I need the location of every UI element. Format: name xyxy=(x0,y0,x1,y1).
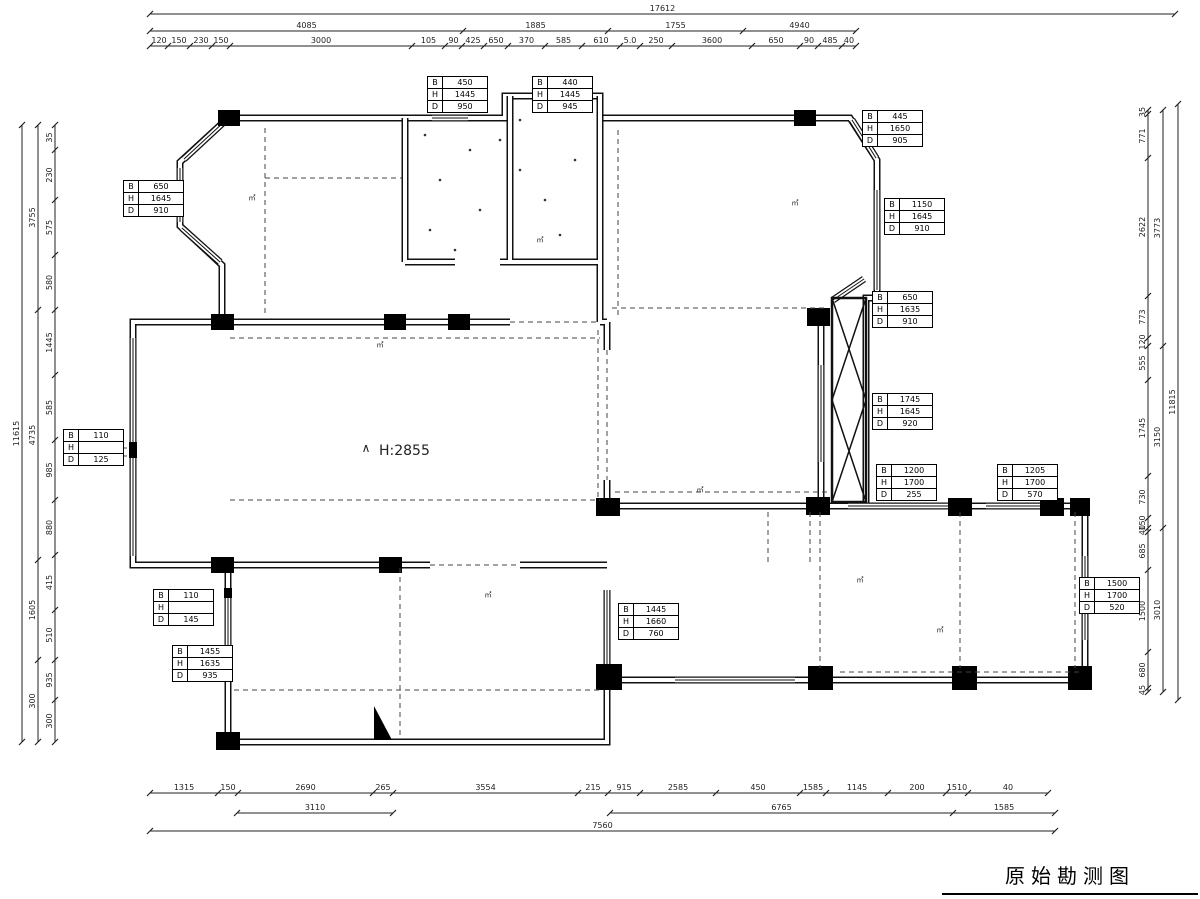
spec-key: D xyxy=(877,489,892,500)
column xyxy=(794,110,816,126)
spec-value: 1645 xyxy=(888,406,932,417)
dimension-label: 1445 xyxy=(45,332,54,352)
dimension-label: 1755 xyxy=(665,21,685,30)
spec-value: 1205 xyxy=(1013,465,1057,476)
dimension-label: 685 xyxy=(1138,543,1147,558)
tile-dots xyxy=(424,119,577,252)
spec-key: D xyxy=(998,489,1013,500)
window-symbol xyxy=(182,228,220,262)
tile-dot xyxy=(519,169,522,172)
window-symbol xyxy=(184,121,225,159)
spec-key: D xyxy=(619,628,634,639)
dimension-label: 370 xyxy=(519,36,534,45)
spec-key: H xyxy=(877,477,892,488)
spec-row: H1700 xyxy=(1080,590,1139,602)
dimension-label: 1510 xyxy=(947,783,967,792)
spec-key: H xyxy=(64,442,79,453)
spec-value: 650 xyxy=(888,292,932,303)
tile-dot xyxy=(499,139,502,142)
dimension-label: 510 xyxy=(45,627,54,642)
spec-row: D910 xyxy=(885,223,944,234)
spec-key: D xyxy=(533,101,548,112)
spec-row: B1745 xyxy=(873,394,932,406)
spec-row: B1200 xyxy=(877,465,936,477)
entry-door-leaf xyxy=(374,706,392,740)
spec-value: 1500 xyxy=(1095,578,1139,589)
spec-row: B445 xyxy=(863,111,922,123)
spec-value: 450 xyxy=(443,77,487,88)
dimension-label: 11815 xyxy=(1168,389,1177,414)
tile-dot xyxy=(469,149,472,152)
dimension-label: 6765 xyxy=(771,803,791,812)
spec-row: H1635 xyxy=(173,658,232,670)
dimension-label: 230 xyxy=(45,167,54,182)
spec-value: 950 xyxy=(443,101,487,112)
spec-key: B xyxy=(873,292,888,303)
window-spec-table: B445H1650D905 xyxy=(862,110,923,147)
dimension-label: 150 xyxy=(171,36,186,45)
dimension-label: 773 xyxy=(1138,309,1147,324)
spec-row: H1635 xyxy=(873,304,932,316)
column xyxy=(596,664,622,690)
dimension-label: 35 xyxy=(45,132,54,142)
spec-value: 1700 xyxy=(1095,590,1139,601)
spec-row: D125 xyxy=(64,454,123,465)
spec-row: D145 xyxy=(154,614,213,625)
dimension-label: 425 xyxy=(465,36,480,45)
spec-value: 905 xyxy=(878,135,922,146)
spec-row: H xyxy=(64,442,123,454)
dimension-label: 45 xyxy=(1138,685,1147,695)
dimension-chain: 7560 xyxy=(147,821,1058,834)
dimension-label: 3110 xyxy=(305,803,325,812)
spec-key: D xyxy=(1080,602,1095,613)
dimension-chain: 1201502301503000105904256503705856105.02… xyxy=(147,36,859,49)
spec-key: D xyxy=(173,670,188,681)
dimension-label: 1145 xyxy=(847,783,867,792)
spec-row: D760 xyxy=(619,628,678,639)
spec-row: D910 xyxy=(873,316,932,327)
column xyxy=(1070,498,1090,516)
spec-value: 125 xyxy=(79,454,123,465)
spec-key: H xyxy=(863,123,878,134)
room-area-mark: ㎡ xyxy=(697,486,704,494)
spec-key: H xyxy=(885,211,900,222)
dimension-label: 300 xyxy=(28,693,37,708)
tile-dot xyxy=(439,179,442,182)
spec-key: B xyxy=(124,181,139,192)
spec-key: H xyxy=(1080,590,1095,601)
dimension-label: 200 xyxy=(909,783,924,792)
dimension-label: 3000 xyxy=(311,36,331,45)
column xyxy=(384,314,406,330)
dimension-chain: 1315150269026535542159152585450158511452… xyxy=(147,783,1051,796)
spec-row: B450 xyxy=(428,77,487,89)
window-spec-table: B650H1645D910 xyxy=(123,180,184,217)
dimension-label: 3773 xyxy=(1153,218,1162,238)
dimension-label: 3150 xyxy=(1153,427,1162,447)
room-area-mark: ㎡ xyxy=(857,576,864,584)
column xyxy=(218,110,240,126)
spec-key: D xyxy=(154,614,169,625)
spec-value: 1445 xyxy=(634,604,678,615)
dimension-label: 555 xyxy=(1138,355,1147,370)
spec-row: B110 xyxy=(154,590,213,602)
dimension-label: 250 xyxy=(648,36,663,45)
spec-value: 935 xyxy=(188,670,232,681)
window-spec-table: B440H1445D945 xyxy=(532,76,593,113)
spec-value: 1650 xyxy=(878,123,922,134)
dimension-label: 935 xyxy=(45,672,54,687)
spec-value: 1660 xyxy=(634,616,678,627)
window-spec-table: B450H1445D950 xyxy=(427,76,488,113)
dimension-label: 650 xyxy=(488,36,503,45)
window-spec-table: B1745H1645D920 xyxy=(872,393,933,430)
dimension-label: 90 xyxy=(448,36,458,45)
spec-value: 570 xyxy=(1013,489,1057,500)
room-area-mark: ㎡ xyxy=(937,626,944,634)
window-spec-table: B1445H1660D760 xyxy=(618,603,679,640)
dimension-label: 880 xyxy=(45,520,54,535)
dimension-label: 7560 xyxy=(592,821,612,830)
spec-key: B xyxy=(885,199,900,210)
spec-value: 1745 xyxy=(888,394,932,405)
shaft-hatch xyxy=(832,298,866,502)
spec-row: H1700 xyxy=(877,477,936,489)
tile-dot xyxy=(559,234,562,237)
dimension-label: 1605 xyxy=(28,600,37,620)
column xyxy=(952,666,977,690)
spec-key: H xyxy=(873,406,888,417)
dimension-label: 3554 xyxy=(475,783,495,792)
spec-value: 1645 xyxy=(139,193,183,204)
spec-value: 520 xyxy=(1095,602,1139,613)
dimension-label: 5.0 xyxy=(624,36,637,45)
spec-value: 1635 xyxy=(888,304,932,315)
dimension-label: 1585 xyxy=(803,783,823,792)
spec-key: B xyxy=(863,111,878,122)
dimension-label: 585 xyxy=(556,36,571,45)
column xyxy=(379,557,402,573)
floor-plan-drawing: 1761240851885175549401201502301503000105… xyxy=(0,0,1200,899)
spec-value: 1200 xyxy=(892,465,936,476)
dimension-chain: 67651585 xyxy=(607,803,1058,816)
spec-value: 440 xyxy=(548,77,592,88)
dimension-chain: 4085188517554940 xyxy=(147,21,859,34)
dimension-label: 105 xyxy=(421,36,436,45)
spec-key: D xyxy=(863,135,878,146)
spec-row: D905 xyxy=(863,135,922,146)
dimension-label: 230 xyxy=(193,36,208,45)
dimension-label: 575 xyxy=(45,220,54,235)
spec-key: D xyxy=(873,418,888,429)
dimension-label: 2585 xyxy=(668,783,688,792)
dimension-label: 1585 xyxy=(994,803,1014,812)
dimension-label: 120 xyxy=(151,36,166,45)
window-spec-table: B1205H1700D570 xyxy=(997,464,1058,501)
tile-dot xyxy=(544,199,547,202)
spec-row: H1445 xyxy=(533,89,592,101)
spec-row: D945 xyxy=(533,101,592,112)
height-symbol: ∧ xyxy=(362,441,371,455)
spec-key: B xyxy=(533,77,548,88)
dimension-label: 3755 xyxy=(28,207,37,227)
dimension-label: 2690 xyxy=(295,783,315,792)
dimension-label: 215 xyxy=(585,783,600,792)
window-spec-table: B1200H1700D255 xyxy=(876,464,937,501)
spec-value xyxy=(79,442,123,453)
window-spec-table: B650H1635D910 xyxy=(872,291,933,328)
dimension-label: 450 xyxy=(750,783,765,792)
spec-row: H1645 xyxy=(873,406,932,418)
tile-dot xyxy=(574,159,577,162)
spec-row: B1455 xyxy=(173,646,232,658)
tile-dot xyxy=(519,119,522,122)
dimension-chain: 17612 xyxy=(147,4,1178,17)
dimension-label: 680 xyxy=(1138,662,1147,677)
spec-value: 1445 xyxy=(548,89,592,100)
spec-value: 1700 xyxy=(892,477,936,488)
tile-dot xyxy=(454,249,457,252)
spec-row: D910 xyxy=(124,205,183,216)
spec-row: H1645 xyxy=(124,193,183,205)
column xyxy=(224,588,232,598)
dimension-label: 985 xyxy=(45,462,54,477)
dimension-label: 4940 xyxy=(789,21,809,30)
spec-value: 910 xyxy=(139,205,183,216)
room-area-mark: ㎡ xyxy=(377,341,384,349)
spec-key: D xyxy=(873,316,888,327)
dimension-label: 35 xyxy=(1138,107,1147,117)
window-spec-table: B1150H1645D910 xyxy=(884,198,945,235)
spec-key: B xyxy=(154,590,169,601)
column xyxy=(129,442,137,458)
dimension-label: 730 xyxy=(1138,489,1147,504)
dimension-label: 40 xyxy=(1003,783,1013,792)
spec-value: 110 xyxy=(169,590,213,601)
column xyxy=(808,666,833,690)
spec-key: B xyxy=(64,430,79,441)
spec-key: D xyxy=(124,205,139,216)
windows xyxy=(133,96,1085,680)
spec-row: B1205 xyxy=(998,465,1057,477)
dimension-label: 150 xyxy=(220,783,235,792)
spec-key: B xyxy=(998,465,1013,476)
spec-key: D xyxy=(64,454,79,465)
spec-value: 1455 xyxy=(188,646,232,657)
spec-key: B xyxy=(619,604,634,615)
dimension-label: 580 xyxy=(45,275,54,290)
dimension-chain: 11615 xyxy=(12,122,25,745)
spec-row: B1150 xyxy=(885,199,944,211)
dimension-label: 415 xyxy=(45,575,54,590)
spec-row: B110 xyxy=(64,430,123,442)
dimension-label: 40 xyxy=(1138,525,1147,535)
dimension-label: 150 xyxy=(213,36,228,45)
room-area-mark: ㎡ xyxy=(792,199,799,207)
spec-row: B440 xyxy=(533,77,592,89)
spec-row: H1445 xyxy=(428,89,487,101)
spec-value xyxy=(169,602,213,613)
window-spec-table: B1500H1700D520 xyxy=(1079,577,1140,614)
spec-key: H xyxy=(619,616,634,627)
spec-key: H xyxy=(873,304,888,315)
dimension-label: 300 xyxy=(45,713,54,728)
spec-key: B xyxy=(428,77,443,88)
drawing-title-text: 原始勘测图 xyxy=(1005,864,1135,888)
spec-value: 1150 xyxy=(900,199,944,210)
spec-row: D570 xyxy=(998,489,1057,500)
dimension-label: 1315 xyxy=(174,783,194,792)
dimension-label: 1885 xyxy=(525,21,545,30)
dimension-label: 771 xyxy=(1138,128,1147,143)
tile-dot xyxy=(429,229,432,232)
window-spec-table: B110HD145 xyxy=(153,589,214,626)
spec-row: D255 xyxy=(877,489,936,500)
spec-value: 920 xyxy=(888,418,932,429)
dimension-chain: 3110 xyxy=(234,803,396,816)
spec-row: D935 xyxy=(173,670,232,681)
tile-dot xyxy=(479,209,482,212)
spec-value: 1645 xyxy=(900,211,944,222)
tile-dot xyxy=(424,134,427,137)
spec-row: D920 xyxy=(873,418,932,429)
spec-value: 1700 xyxy=(1013,477,1057,488)
dimension-label: 120 xyxy=(1138,334,1147,349)
spec-row: B650 xyxy=(873,292,932,304)
interior-walls xyxy=(222,96,866,565)
column xyxy=(807,308,830,326)
dimension-label: 915 xyxy=(616,783,631,792)
dimension-label: 265 xyxy=(375,783,390,792)
window-spec-table: B1455H1635D935 xyxy=(172,645,233,682)
dimension-label: 17612 xyxy=(650,4,675,13)
spec-value: 145 xyxy=(169,614,213,625)
spec-key: H xyxy=(124,193,139,204)
dimension-label: 90 xyxy=(804,36,814,45)
column xyxy=(211,314,234,330)
spec-row: D520 xyxy=(1080,602,1139,613)
spec-key: H xyxy=(154,602,169,613)
spec-key: B xyxy=(877,465,892,476)
spec-key: H xyxy=(173,658,188,669)
spec-value: 445 xyxy=(878,111,922,122)
dimension-chain: 377331503010 xyxy=(1153,107,1166,695)
spec-row: D950 xyxy=(428,101,487,112)
floor-height-label: ∧ H:2855 xyxy=(362,441,430,459)
room-area-mark: ㎡ xyxy=(537,236,544,244)
dimension-chain: 352305755801445585985880415510935300 xyxy=(45,122,58,745)
dimension-chain: 11815 xyxy=(1168,101,1181,703)
dimension-label: 3010 xyxy=(1153,600,1162,620)
dimension-label: 610 xyxy=(593,36,608,45)
spec-value: 760 xyxy=(634,628,678,639)
dimension-label: 4735 xyxy=(28,425,37,445)
spec-key: H xyxy=(428,89,443,100)
column xyxy=(211,557,234,573)
room-area-mark: ㎡ xyxy=(485,591,492,599)
column xyxy=(596,498,620,516)
spec-key: B xyxy=(873,394,888,405)
spec-value: 110 xyxy=(79,430,123,441)
spec-key: H xyxy=(998,477,1013,488)
spec-row: H1700 xyxy=(998,477,1057,489)
spec-row: H1660 xyxy=(619,616,678,628)
spec-value: 1445 xyxy=(443,89,487,100)
spec-row: H xyxy=(154,602,213,614)
spec-key: B xyxy=(1080,578,1095,589)
spec-row: H1650 xyxy=(863,123,922,135)
dimension-label: 3600 xyxy=(702,36,722,45)
spec-value: 910 xyxy=(900,223,944,234)
spec-row: B1500 xyxy=(1080,578,1139,590)
column xyxy=(216,732,240,750)
height-value: H:2855 xyxy=(379,443,430,459)
dimension-label: 40 xyxy=(844,36,854,45)
spec-value: 945 xyxy=(548,101,592,112)
spec-row: B650 xyxy=(124,181,183,193)
spec-row: B1445 xyxy=(619,604,678,616)
spec-row: H1645 xyxy=(885,211,944,223)
floor-plan-canvas: 1761240851885175549401201502301503000105… xyxy=(0,0,1200,899)
dimension-label: 2622 xyxy=(1138,217,1147,237)
spec-value: 1635 xyxy=(188,658,232,669)
spec-key: D xyxy=(885,223,900,234)
spec-key: D xyxy=(428,101,443,112)
spec-key: H xyxy=(533,89,548,100)
dimension-label: 11615 xyxy=(12,421,21,446)
spec-value: 255 xyxy=(892,489,936,500)
column xyxy=(448,314,470,330)
dimension-label: 485 xyxy=(822,36,837,45)
drawing-title: 原始勘测图 xyxy=(942,860,1198,895)
dimension-chain: 375547351605300 xyxy=(28,122,41,745)
column xyxy=(1068,666,1092,690)
spec-value: 650 xyxy=(139,181,183,192)
dimension-label: 585 xyxy=(45,400,54,415)
dimension-label: 4085 xyxy=(296,21,316,30)
window-spec-table: B110HD125 xyxy=(63,429,124,466)
spec-value: 910 xyxy=(888,316,932,327)
dimension-label: 650 xyxy=(768,36,783,45)
dimension-label: 1745 xyxy=(1138,418,1147,438)
room-area-mark: ㎡ xyxy=(249,194,256,202)
spec-key: B xyxy=(173,646,188,657)
